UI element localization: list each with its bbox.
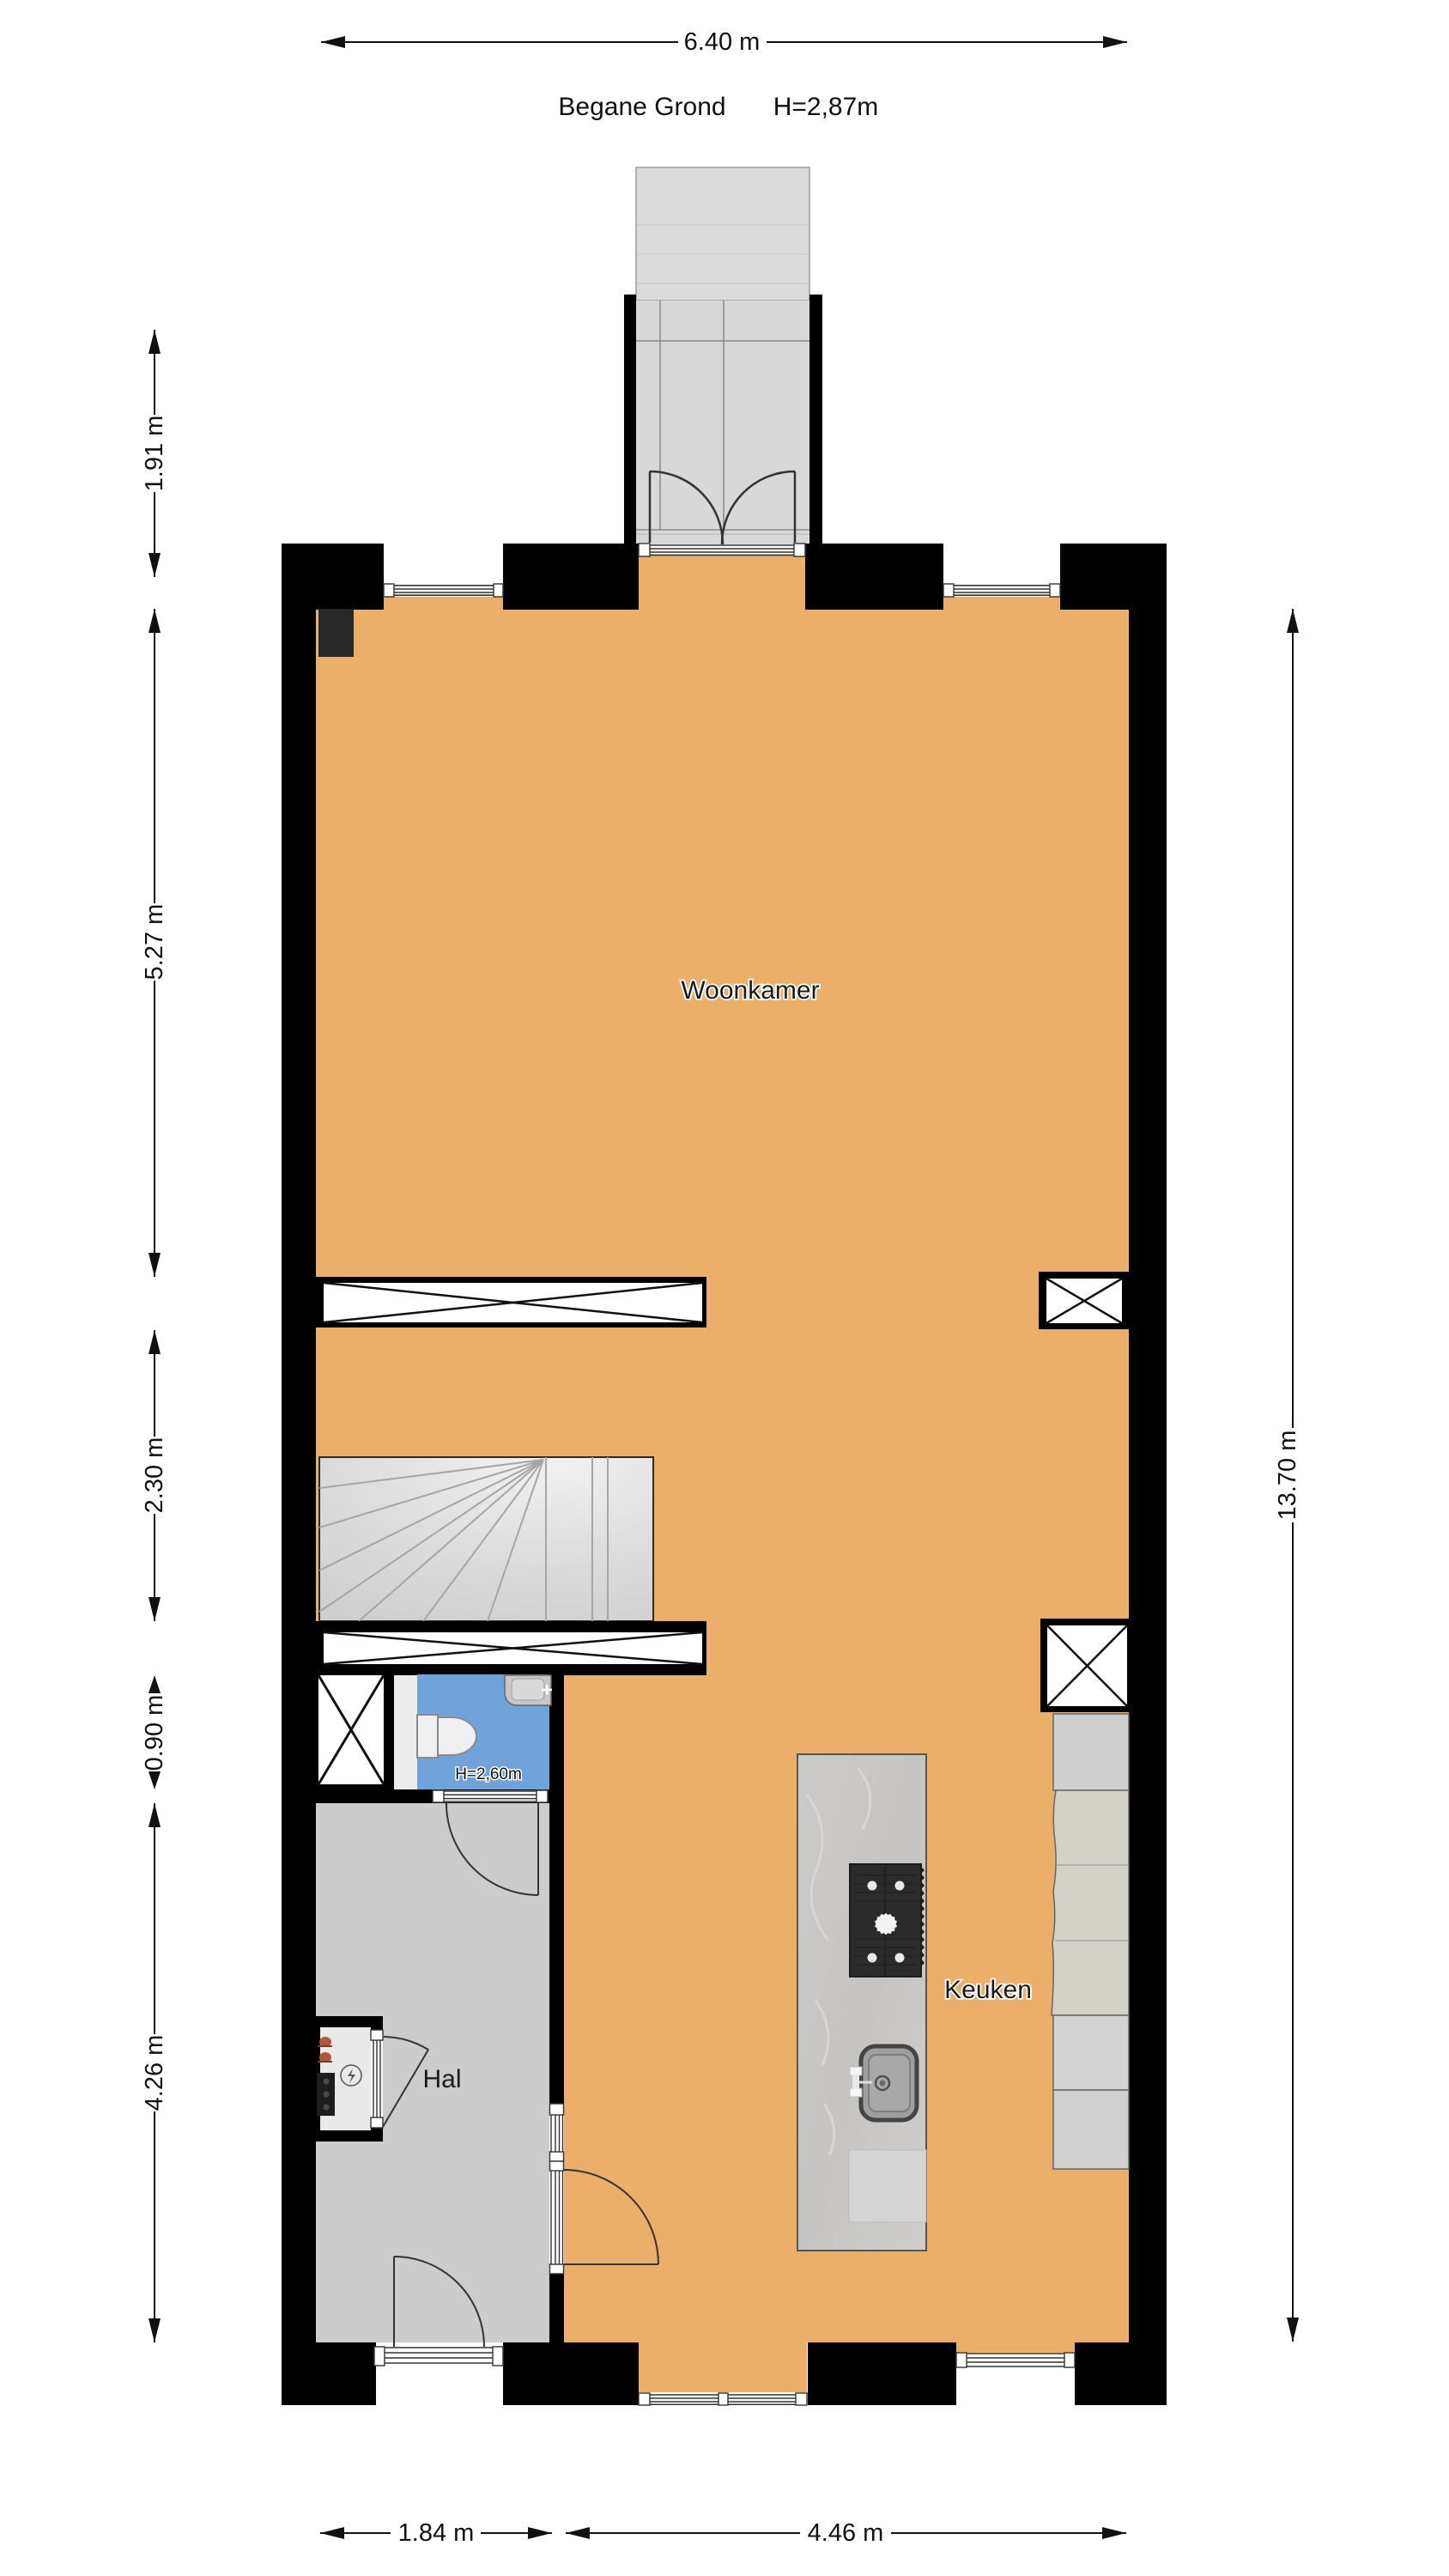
svg-text:0.90 m: 0.90 m: [141, 1695, 168, 1771]
svg-text:4.26 m: 4.26 m: [141, 2035, 168, 2111]
svg-text:H=2,87m: H=2,87m: [773, 93, 879, 121]
svg-text:6.40 m: 6.40 m: [684, 28, 761, 56]
svg-text:5.27 m: 5.27 m: [141, 904, 168, 981]
svg-text:Begane Grond: Begane Grond: [558, 93, 725, 121]
svg-text:4.46 m: 4.46 m: [808, 2519, 884, 2547]
svg-text:Woonkamer: Woonkamer: [681, 976, 819, 1005]
svg-text:1.84 m: 1.84 m: [398, 2519, 475, 2547]
svg-text:1.91 m: 1.91 m: [141, 416, 168, 492]
svg-text:2.30 m: 2.30 m: [141, 1437, 168, 1514]
svg-text:13.70 m: 13.70 m: [1274, 1431, 1301, 1521]
svg-text:Keuken: Keuken: [944, 1976, 1032, 2004]
svg-text:Hal: Hal: [422, 2065, 461, 2093]
svg-text:H=2,60m: H=2,60m: [455, 1765, 522, 1783]
